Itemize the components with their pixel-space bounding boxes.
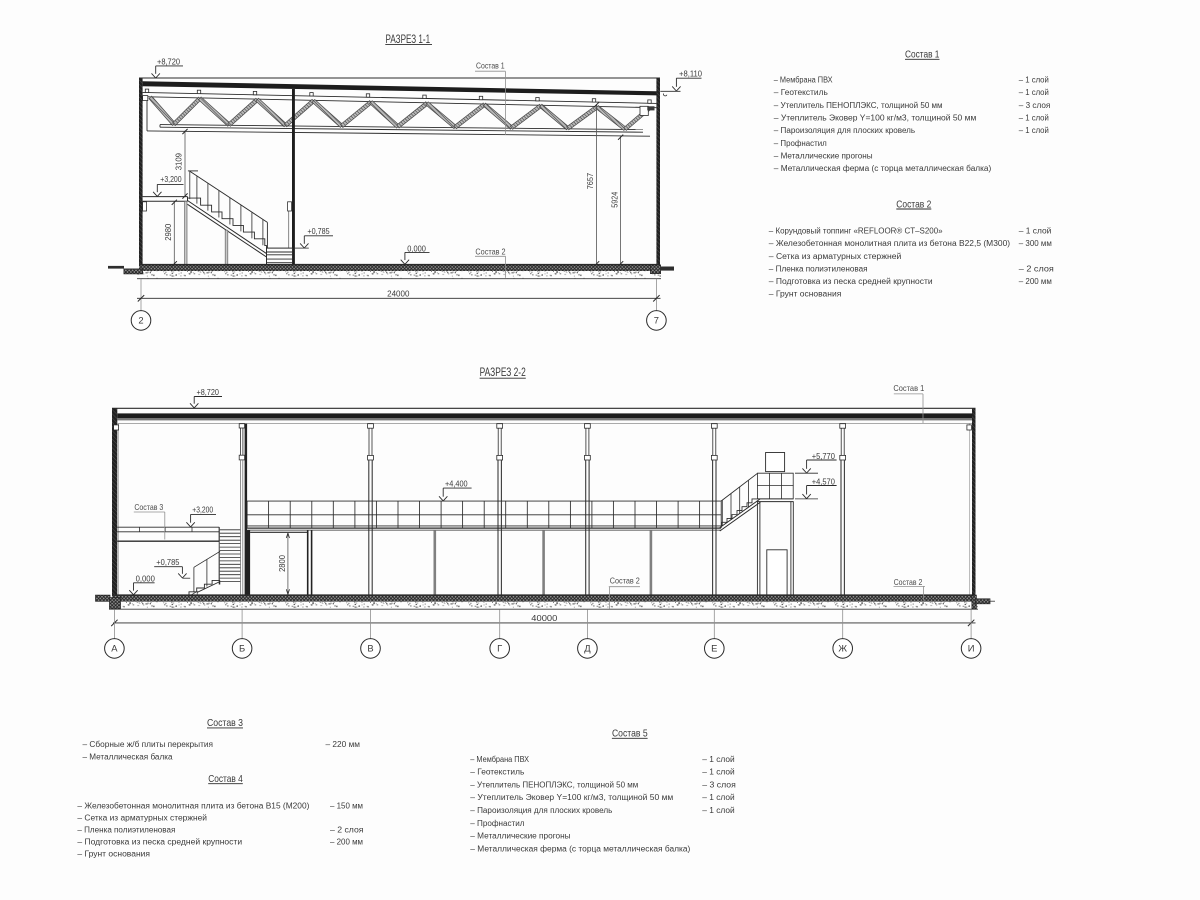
svg-text:+5,770: +5,770 (812, 451, 835, 461)
svg-text:– Металлические прогоны: – Металлические прогоны (470, 832, 571, 841)
svg-text:– Металлическая балка: – Металлическая балка (83, 753, 174, 762)
svg-text:Состав 1: Состав 1 (476, 61, 505, 71)
svg-text:– Пароизоляция для плоских кр: – Пароизоляция для плоских кровель (774, 126, 915, 135)
svg-text:+4,400: +4,400 (445, 479, 468, 489)
svg-text:– Профнастил: – Профнастил (774, 139, 827, 148)
svg-text:– 1 слой: – 1 слой (702, 806, 734, 815)
svg-text:+3,200: +3,200 (160, 174, 182, 184)
svg-text:– 2 слоя: – 2 слоя (330, 826, 364, 835)
svg-text:А: А (111, 643, 118, 654)
svg-text:– Сетка из арматурных стержне: – Сетка из арматурных стержней (769, 252, 902, 261)
svg-text:– Геотекстиль: – Геотекстиль (470, 768, 524, 777)
svg-text:2800: 2800 (278, 555, 287, 572)
svg-text:– Железобетонная монолитная: – Железобетонная монолитная плита из бет… (77, 802, 309, 811)
svg-text:– 220 мм: – 220 мм (326, 740, 361, 749)
svg-text:– Мембрана ПВХ: – Мембрана ПВХ (470, 755, 530, 764)
svg-text:– 200 мм: – 200 мм (1019, 277, 1052, 286)
svg-text:– Сетка из арматурных стержне: – Сетка из арматурных стержней (77, 814, 207, 823)
svg-text:– Металлические прогоны: – Металлические прогоны (774, 151, 873, 160)
svg-text:24000: 24000 (387, 290, 410, 299)
svg-text:Состав 3: Состав 3 (134, 502, 163, 512)
svg-text:– Металлическая ферма (с торц: – Металлическая ферма (с торца металличе… (774, 164, 992, 173)
svg-text:– Подготовка из песка средней: – Подготовка из песка средней крупности (77, 838, 242, 847)
svg-text:2980: 2980 (164, 223, 173, 241)
svg-text:+3,200: +3,200 (192, 505, 213, 515)
svg-text:– Утеплитель ПЕНОПЛЭКС, толщи: – Утеплитель ПЕНОПЛЭКС, толщиной 50 мм (470, 780, 638, 789)
svg-text:40000: 40000 (531, 614, 557, 623)
svg-text:– 2 слоя: – 2 слоя (1019, 264, 1054, 273)
svg-text:Состав 1: Состав 1 (893, 383, 924, 393)
svg-text:Б: Б (239, 643, 245, 654)
svg-text:– Профнастил: – Профнастил (470, 819, 525, 828)
svg-text:В: В (367, 643, 373, 654)
svg-text:– Железобетонная монолитная: – Железобетонная монолитная плита из бет… (769, 239, 1011, 248)
svg-text:5924: 5924 (611, 191, 620, 207)
svg-text:И: И (968, 643, 975, 654)
svg-text:– Пленка полиэтиленовая: – Пленка полиэтиленовая (77, 826, 175, 835)
svg-text:– Грунт основания: – Грунт основания (77, 850, 150, 859)
svg-text:– 1 слой: – 1 слой (1019, 76, 1049, 85)
svg-text:+8,720: +8,720 (197, 387, 220, 397)
svg-text:– Корундовый топпинг «REFLOOR: – Корундовый топпинг «REFLOOR® CT–S200» (769, 227, 943, 236)
svg-text:+0,785: +0,785 (307, 226, 329, 236)
svg-text:Е: Е (711, 643, 717, 654)
svg-text:РАЗРЕЗ 1-1: РАЗРЕЗ 1-1 (386, 33, 431, 46)
svg-text:7657: 7657 (586, 172, 595, 189)
svg-text:Г: Г (497, 643, 502, 654)
svg-text:– Мембрана ПВХ: – Мембрана ПВХ (774, 76, 834, 85)
svg-text:– 1 слой: – 1 слой (702, 755, 734, 764)
svg-text:0,000: 0,000 (407, 243, 426, 253)
svg-text:– Металлическая ферма (с торц: – Металлическая ферма (с торца металличе… (470, 844, 690, 853)
svg-text:Ж: Ж (838, 643, 847, 654)
svg-text:+4,570: +4,570 (812, 476, 835, 486)
svg-text:– Утеплитель Эковер Y=100 кг/: – Утеплитель Эковер Y=100 кг/м3, толщино… (470, 793, 673, 802)
svg-text:Состав 2: Состав 2 (475, 246, 505, 256)
svg-text:– Пленка полиэтиленовая: – Пленка полиэтиленовая (769, 264, 868, 273)
svg-text:3109: 3109 (174, 152, 183, 170)
svg-text:– Сборные ж/б плиты перекрыти: – Сборные ж/б плиты перекрытия (83, 740, 214, 749)
svg-text:– Пароизоляция для плоских кр: – Пароизоляция для плоских кровель (470, 806, 612, 815)
svg-text:– 200 мм: – 200 мм (330, 838, 363, 847)
svg-text:Д: Д (584, 643, 591, 654)
svg-text:7: 7 (654, 315, 659, 326)
svg-text:Состав 2: Состав 2 (610, 576, 640, 586)
svg-text:– 1 слой: – 1 слой (702, 793, 734, 802)
svg-text:РАЗРЕЗ 2-2: РАЗРЕЗ 2-2 (480, 366, 526, 379)
svg-text:0,000: 0,000 (136, 573, 156, 583)
svg-text:+8,110: +8,110 (679, 69, 702, 79)
svg-text:– 1 слой: – 1 слой (702, 768, 734, 777)
svg-text:– Грунт основания: – Грунт основания (769, 290, 842, 299)
svg-text:Состав 2: Состав 2 (894, 577, 923, 587)
svg-text:– 3 слоя: – 3 слоя (702, 780, 736, 789)
svg-text:– Подготовка из песка средней: – Подготовка из песка средней крупности (769, 277, 933, 286)
svg-text:– 1 слой: – 1 слой (1019, 126, 1049, 135)
svg-text:+8,720: +8,720 (157, 56, 180, 66)
svg-text:– 1 слой: – 1 слой (1019, 88, 1049, 97)
svg-text:– 3 слоя: – 3 слоя (1019, 101, 1050, 110)
svg-text:– 150 мм: – 150 мм (330, 802, 363, 811)
svg-text:– 300 мм: – 300 мм (1019, 239, 1052, 248)
svg-text:+0,785: +0,785 (156, 557, 179, 567)
svg-text:– 1 слой: – 1 слой (1019, 114, 1049, 123)
svg-text:2: 2 (138, 315, 143, 326)
svg-text:– Утеплитель Эковер Y=100 кг/: – Утеплитель Эковер Y=100 кг/м3, толщино… (774, 114, 977, 123)
svg-text:– Геотекстиль: – Геотекстиль (774, 88, 828, 97)
svg-text:– 1 слой: – 1 слой (1019, 227, 1052, 236)
svg-text:– Утеплитель ПЕНОПЛЭКС, толщи: – Утеплитель ПЕНОПЛЭКС, толщиной 50 мм (774, 101, 943, 110)
